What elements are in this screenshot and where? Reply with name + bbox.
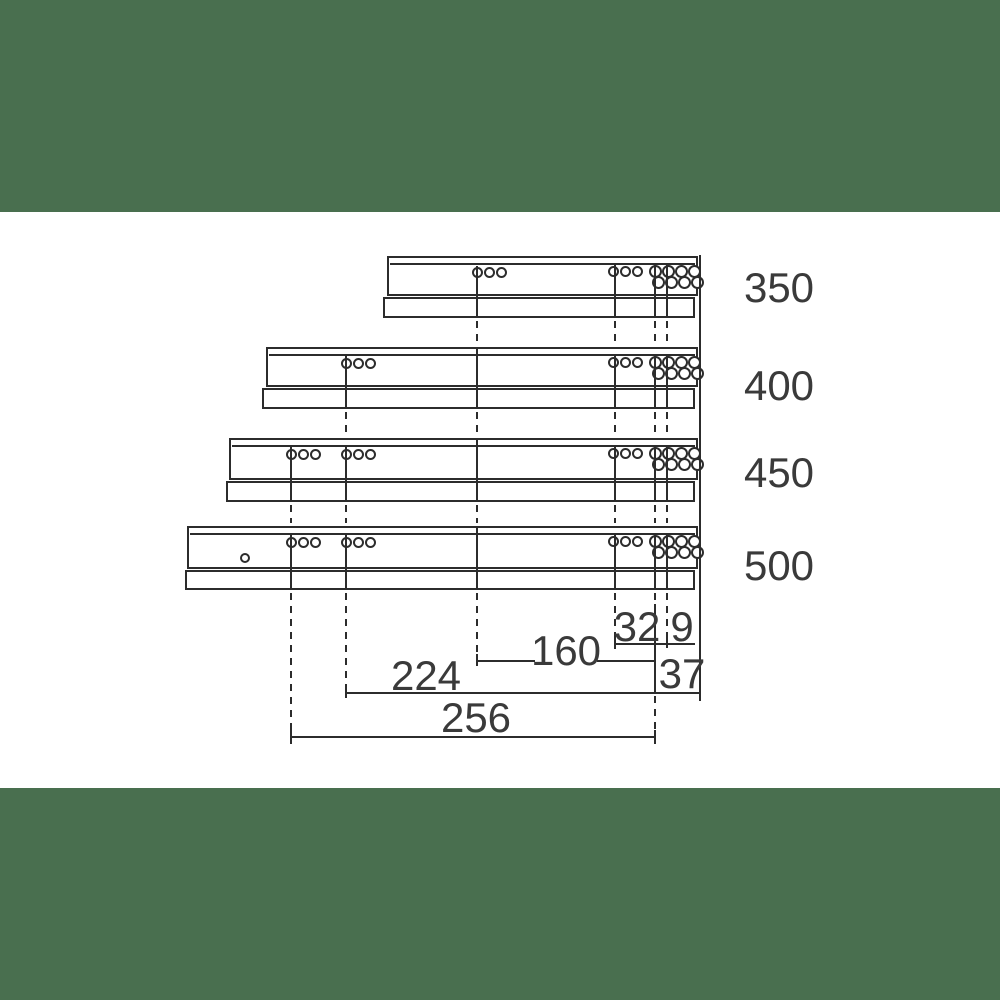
reference-line: [614, 447, 616, 502]
drawing-page: 350 400 450 500 32 9 160 37 224 256: [0, 0, 1000, 1000]
reference-line: [476, 321, 478, 344]
mounting-hole: [240, 553, 250, 563]
reference-line: [476, 526, 478, 590]
reference-line: [476, 347, 478, 409]
mounting-hole: [620, 448, 631, 459]
mounting-hole: [353, 537, 364, 548]
reference-line: [290, 447, 292, 502]
mounting-hole: [608, 266, 619, 277]
size-label-500: 500: [744, 545, 814, 587]
reference-line: [476, 593, 478, 654]
mounting-hole: [298, 449, 309, 460]
reference-line: [614, 535, 616, 590]
slide-450-top-groove: [232, 445, 696, 447]
size-label-400: 400: [744, 365, 814, 407]
reference-line: [614, 265, 616, 318]
reference-line: [654, 412, 656, 435]
mounting-hole: [691, 546, 704, 559]
dim-label-256: 256: [441, 697, 511, 739]
reference-line: [345, 505, 347, 523]
mounting-hole: [310, 537, 321, 548]
slide-400-top-groove: [269, 354, 696, 356]
slide-350-top-groove: [390, 263, 696, 265]
reference-line: [666, 412, 668, 435]
reference-line: [345, 447, 347, 502]
mounting-hole: [620, 357, 631, 368]
mounting-hole: [353, 358, 364, 369]
mounting-hole: [608, 357, 619, 368]
mounting-hole: [365, 358, 376, 369]
dim-label-160: 160: [531, 630, 601, 672]
dim-label-224: 224: [391, 655, 461, 697]
mounting-hole: [632, 536, 643, 547]
reference-line: [290, 505, 292, 523]
mounting-hole: [632, 448, 643, 459]
reference-line: [476, 438, 478, 502]
reference-line: [654, 355, 656, 409]
reference-line: [345, 412, 347, 435]
size-label-450: 450: [744, 452, 814, 494]
dim-label-37: 37: [659, 653, 706, 695]
mounting-hole: [632, 266, 643, 277]
mounting-hole: [496, 267, 507, 278]
dim-line-160-a: [477, 660, 535, 662]
mounting-hole: [691, 367, 704, 380]
reference-line: [290, 535, 292, 590]
mounting-hole: [678, 367, 691, 380]
mounting-hole: [678, 458, 691, 471]
mounting-hole: [632, 357, 643, 368]
reference-line: [654, 505, 656, 523]
reference-line: [666, 321, 668, 344]
mounting-hole: [365, 449, 376, 460]
reference-line: [666, 446, 668, 502]
slide-450-bottom-rail: [226, 481, 695, 502]
mounting-hole: [620, 536, 631, 547]
reference-line: [614, 412, 616, 435]
size-label-350: 350: [744, 267, 814, 309]
reference-line: [476, 505, 478, 523]
mounting-hole: [608, 536, 619, 547]
mounting-hole: [608, 448, 619, 459]
mounting-hole: [298, 537, 309, 548]
mounting-hole: [691, 458, 704, 471]
reference-line: [476, 412, 478, 435]
mounting-hole: [310, 449, 321, 460]
dim-line-160-b: [597, 660, 655, 662]
dim-label-9: 9: [670, 606, 693, 648]
reference-line: [654, 321, 656, 344]
mounting-hole: [678, 276, 691, 289]
mounting-hole: [353, 449, 364, 460]
reference-line: [614, 356, 616, 409]
reference-line: [290, 593, 292, 730]
mounting-hole: [691, 276, 704, 289]
reference-line: [666, 264, 668, 318]
reference-line: [345, 593, 347, 686]
reference-line: [666, 505, 668, 523]
reference-line: [666, 534, 668, 590]
reference-line: [666, 593, 668, 638]
reference-line: [654, 696, 656, 730]
mounting-hole: [678, 546, 691, 559]
reference-line: [345, 535, 347, 590]
slide-350-bottom-rail: [383, 297, 695, 318]
mounting-hole: [484, 267, 495, 278]
reference-line: [476, 266, 478, 318]
slide-500-bottom-rail: [185, 570, 695, 590]
mounting-hole: [365, 537, 376, 548]
reference-line: [654, 264, 656, 318]
reference-line: [614, 505, 616, 523]
reference-line: [614, 321, 616, 344]
reference-line: [654, 534, 656, 590]
slide-400-bottom-rail: [262, 388, 695, 409]
drawer-slide-drawing: [0, 0, 1000, 1000]
reference-line: [654, 446, 656, 502]
reference-line: [345, 356, 347, 409]
slide-500-top-groove: [190, 533, 696, 535]
mounting-hole: [620, 266, 631, 277]
slide-400-body: [266, 347, 698, 387]
reference-line: [666, 355, 668, 409]
dim-label-32: 32: [614, 606, 661, 648]
front-edge-reference-line: [699, 255, 701, 701]
